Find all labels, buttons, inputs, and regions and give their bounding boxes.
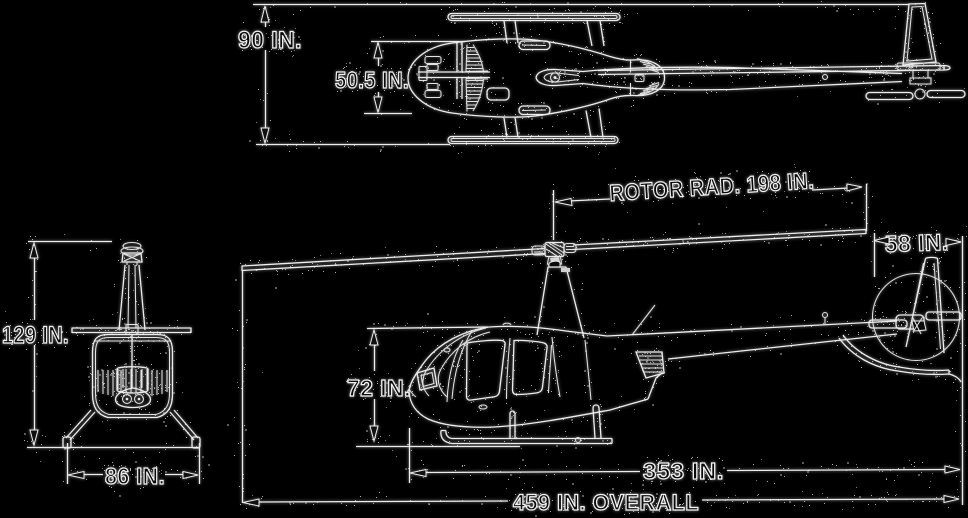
svg-text:129 IN.: 129 IN.: [2, 322, 69, 349]
svg-text:90 IN.: 90 IN.: [238, 27, 302, 54]
svg-text:86 IN.: 86 IN.: [105, 463, 165, 489]
svg-text:72 IN.: 72 IN.: [347, 375, 411, 401]
svg-text:353 IN.: 353 IN.: [643, 458, 724, 484]
svg-text:58 IN.: 58 IN.: [884, 229, 949, 257]
svg-text:459 IN. OVERALL: 459 IN. OVERALL: [513, 490, 699, 515]
svg-text:50.5 IN.: 50.5 IN.: [335, 67, 409, 93]
